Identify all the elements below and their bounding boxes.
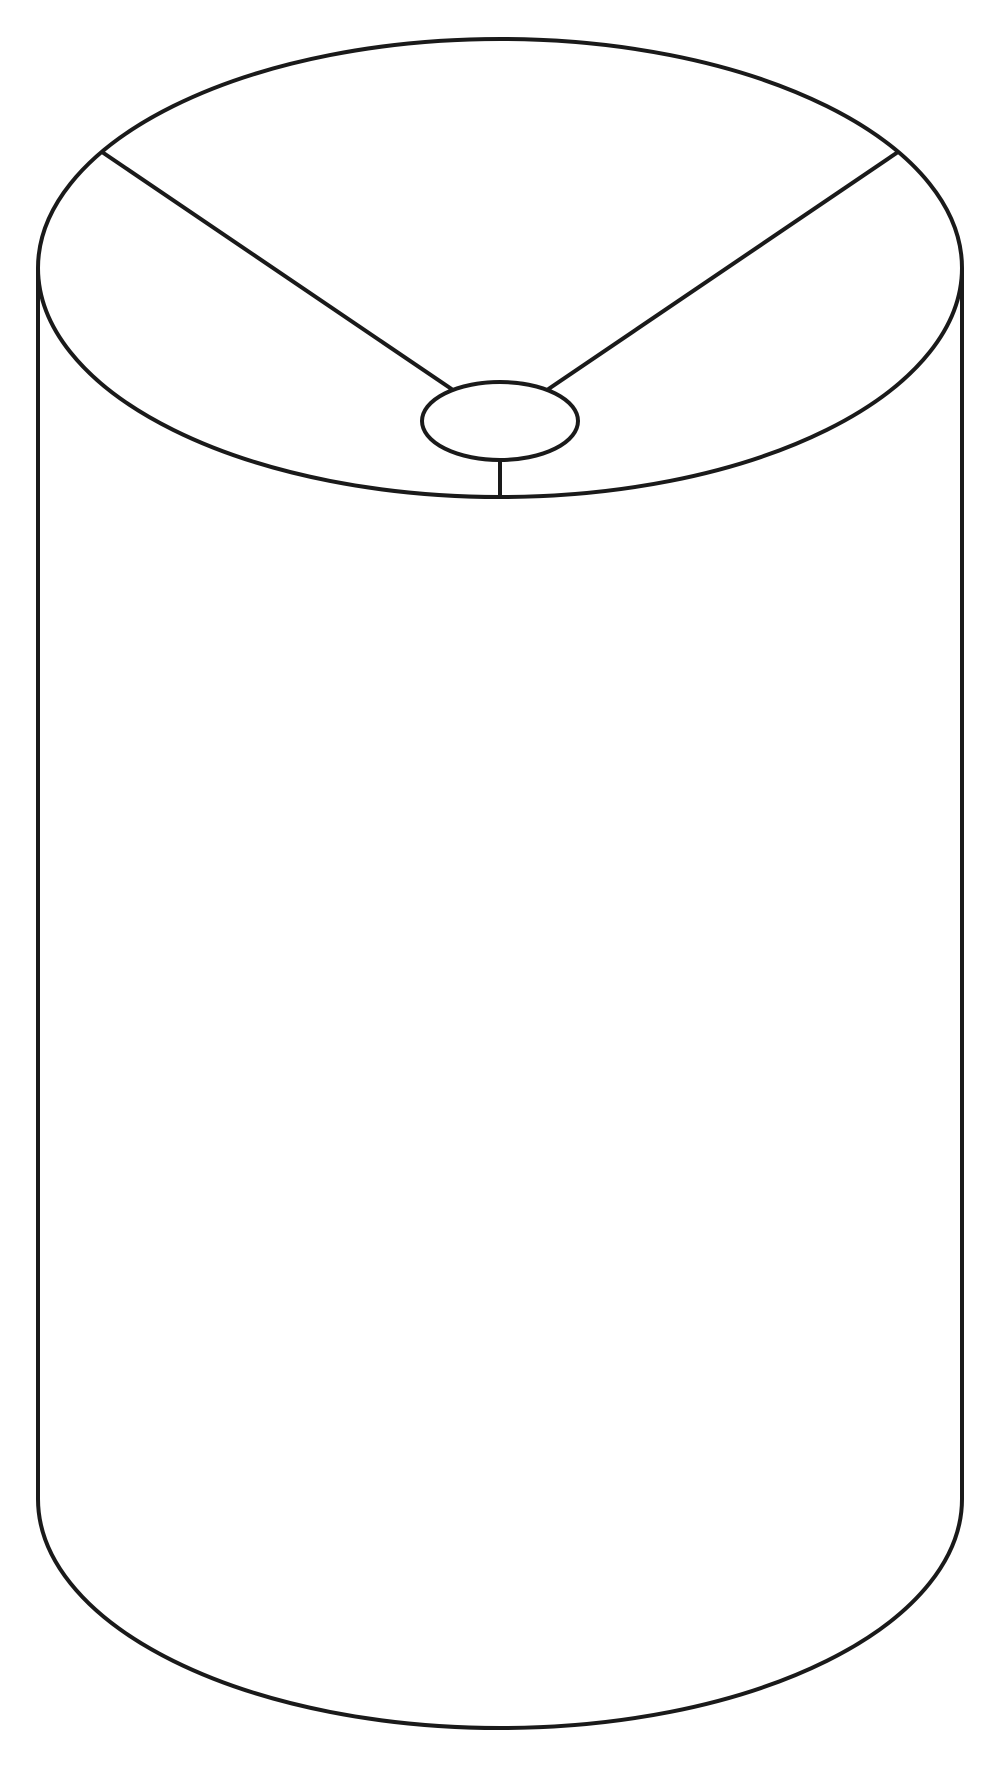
- spoke-upper-left-line: [102, 152, 453, 390]
- lampshade-drawing-svg: [0, 0, 1000, 1770]
- fitter-ring-ellipse: [422, 382, 578, 460]
- lampshade-line-drawing: [0, 0, 1000, 1770]
- top-rim-ellipse: [38, 39, 962, 497]
- bottom-rim-arc: [38, 1499, 962, 1728]
- spoke-upper-right-line: [547, 152, 898, 390]
